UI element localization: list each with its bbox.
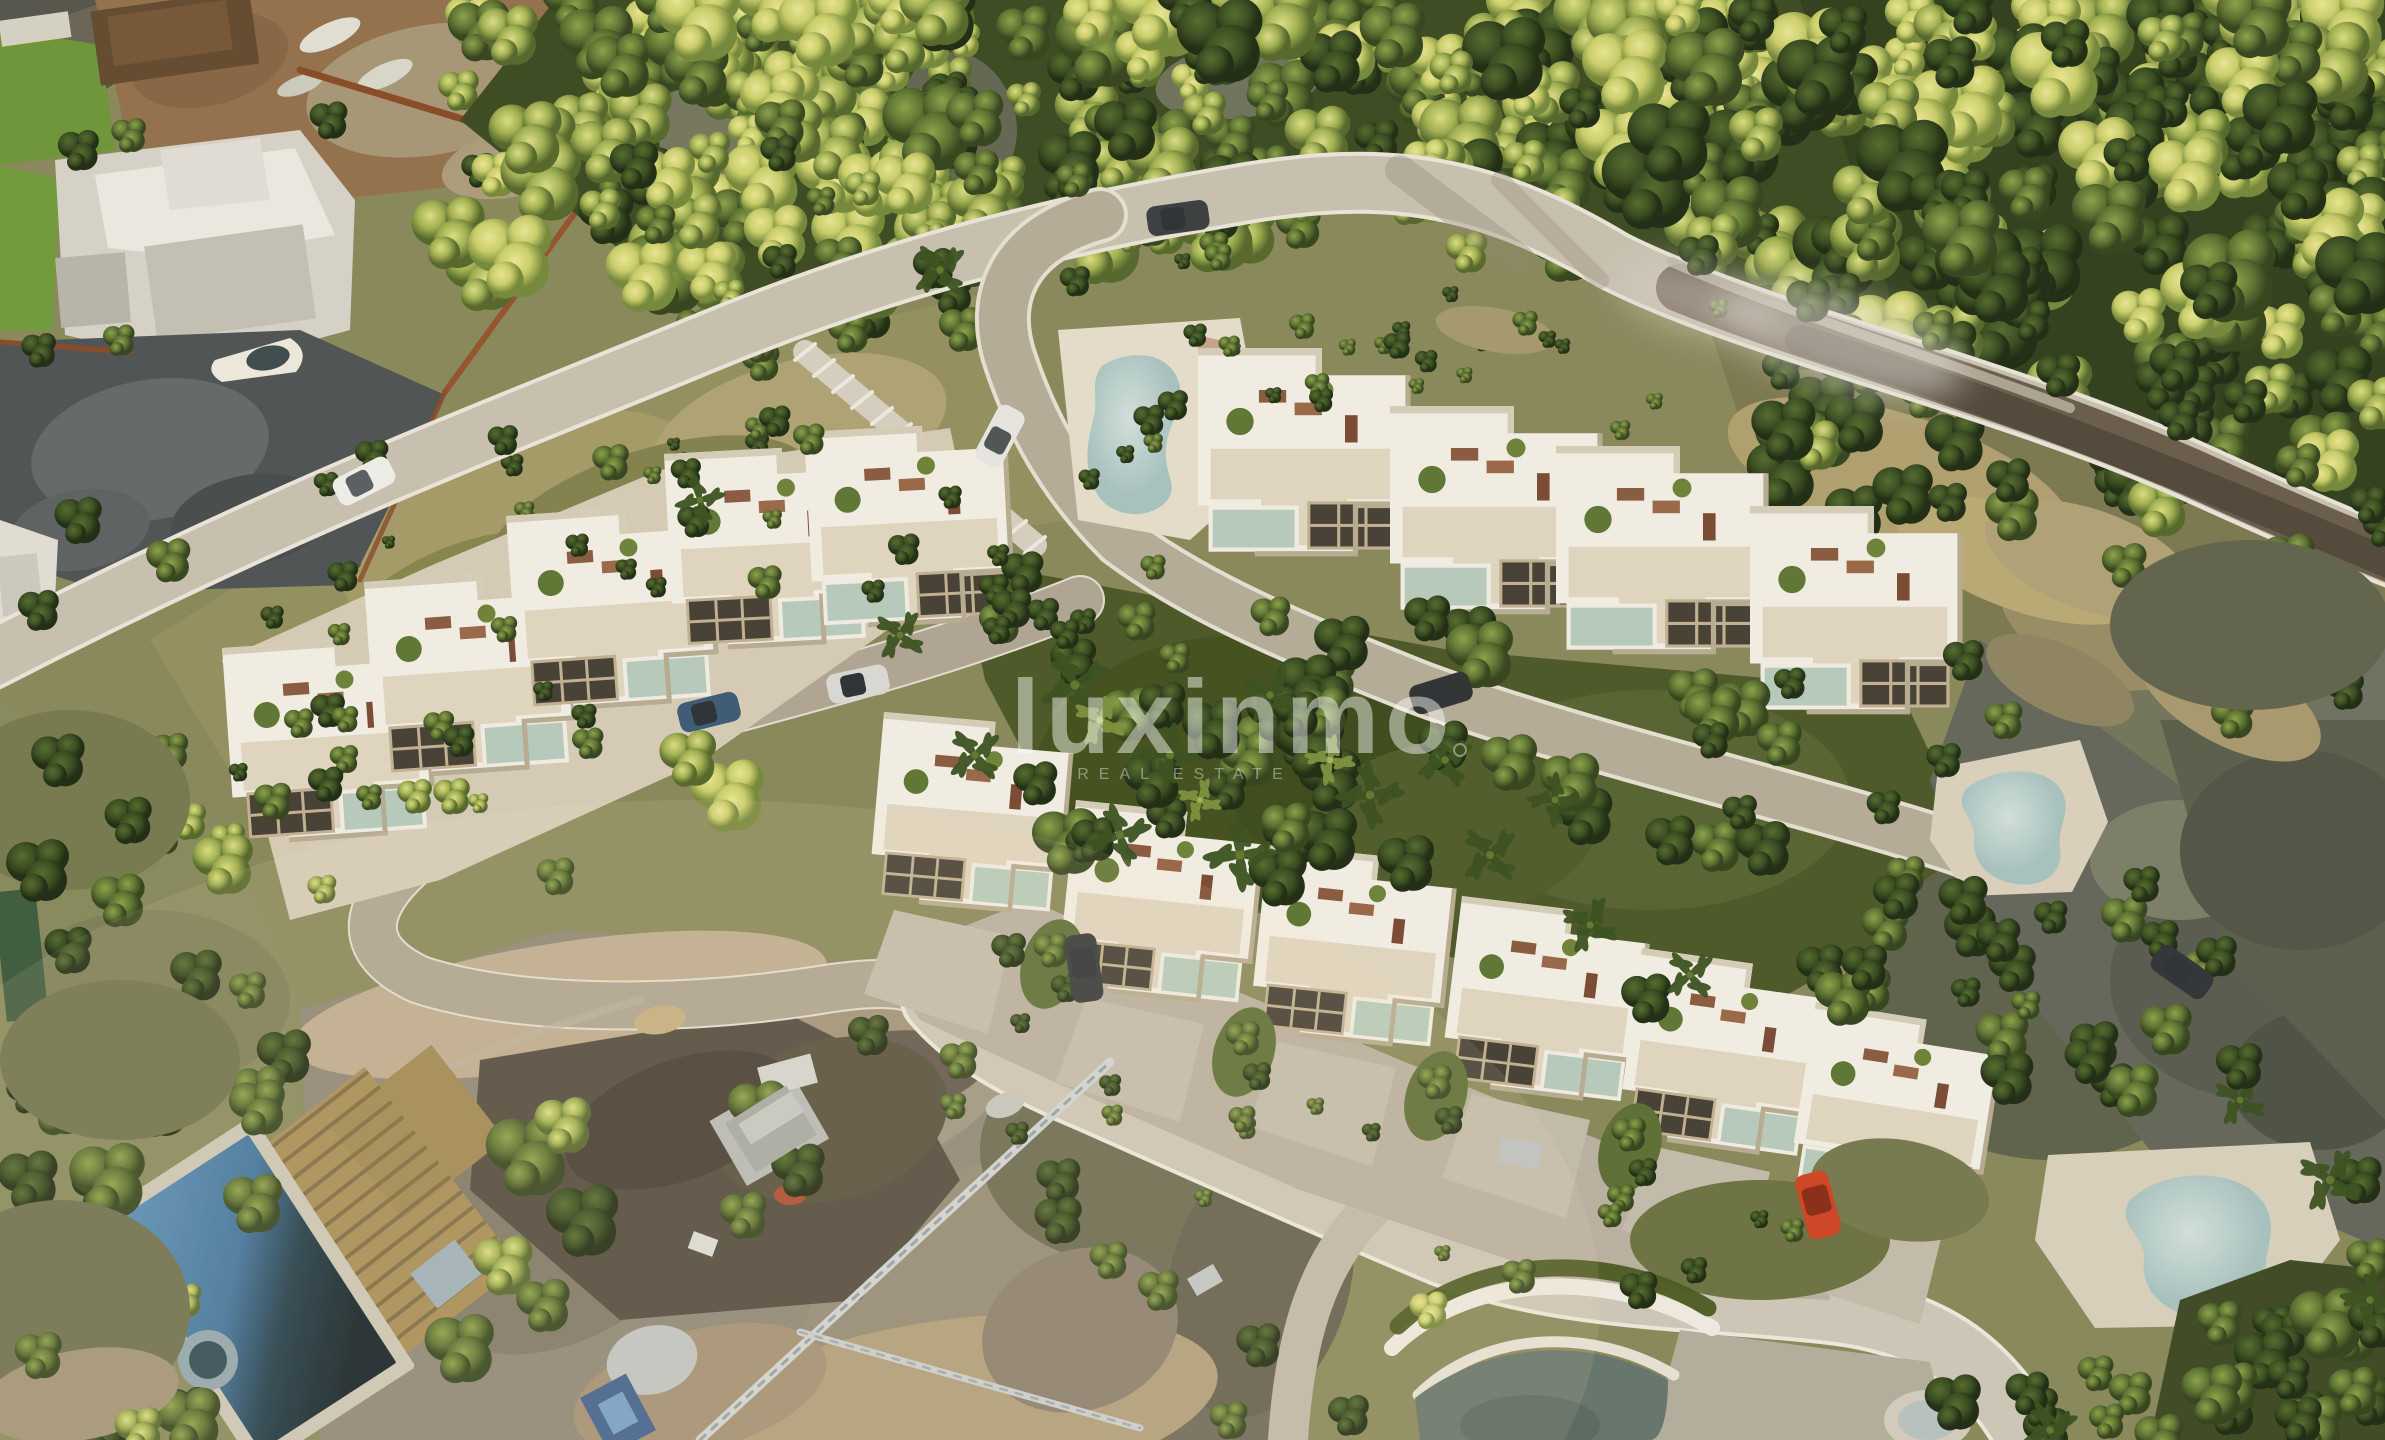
svg-text:REAL ESTATE: REAL ESTATE: [1077, 766, 1293, 783]
svg-text:luxinmo: luxinmo: [1011, 659, 1456, 776]
